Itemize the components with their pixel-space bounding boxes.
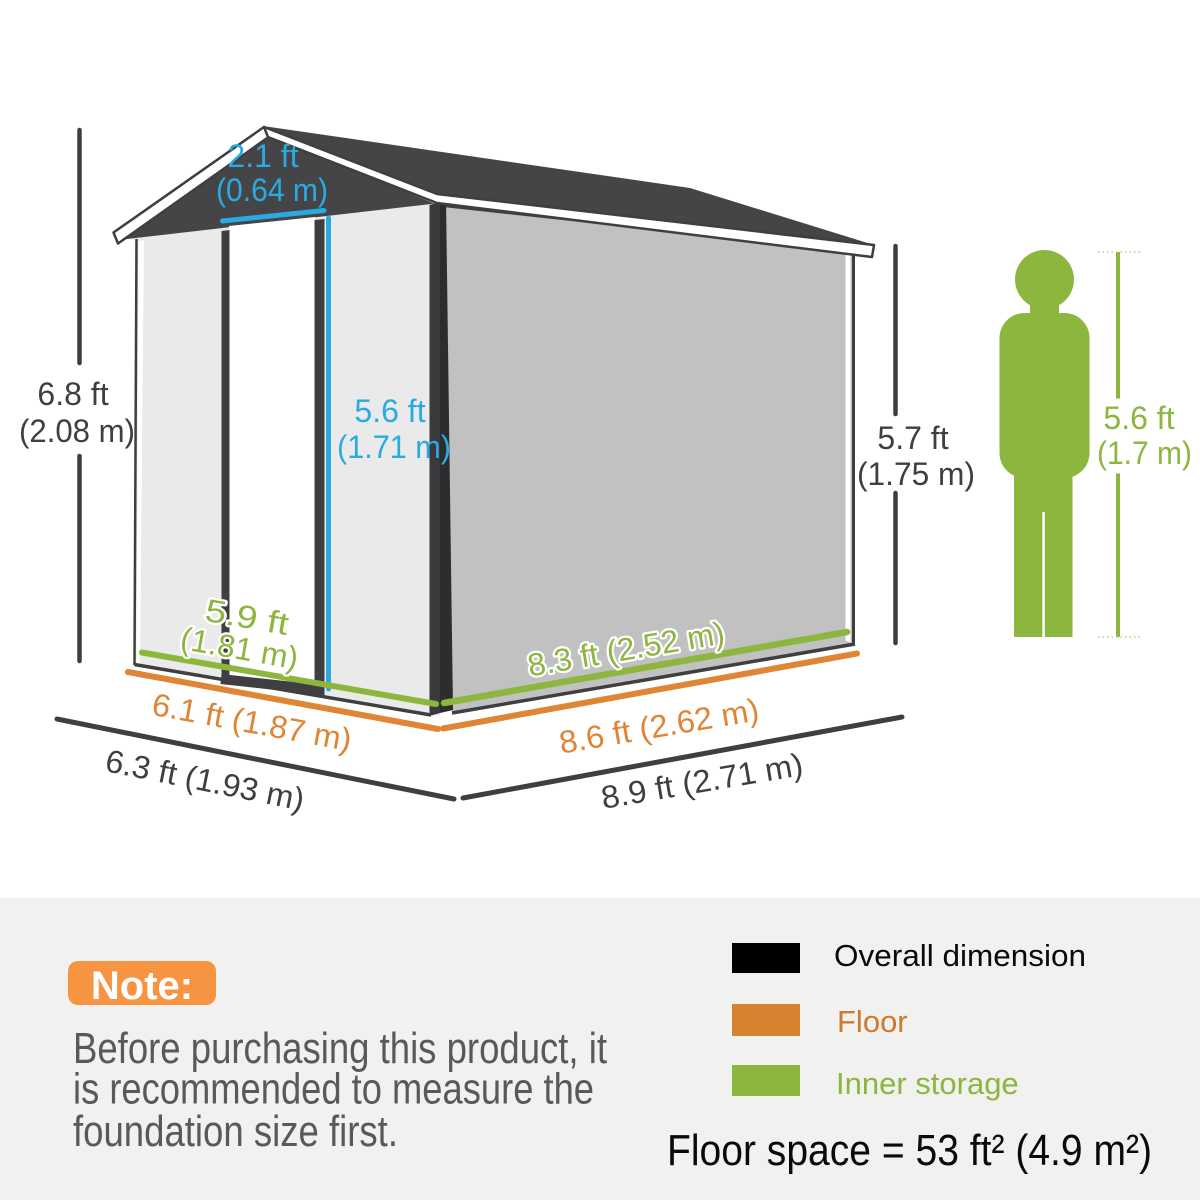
svg-text:Floor: Floor [837, 1004, 908, 1039]
svg-text:(1.71 m): (1.71 m) [337, 429, 451, 465]
svg-text:Floor space = 53 ft² (4.9 m²): Floor space = 53 ft² (4.9 m²) [667, 1126, 1152, 1175]
svg-text:(2.08 m): (2.08 m) [19, 413, 135, 449]
svg-text:Overall dimension: Overall dimension [834, 938, 1086, 973]
svg-text:(0.64 m): (0.64 m) [216, 172, 328, 208]
svg-text:Note:: Note: [91, 964, 193, 1008]
svg-text:5.7 ft: 5.7 ft [877, 420, 948, 456]
svg-text:(1.75 m): (1.75 m) [857, 456, 975, 492]
svg-text:Inner storage: Inner storage [836, 1066, 1019, 1101]
svg-text:(1.7 m): (1.7 m) [1097, 435, 1192, 471]
svg-text:foundation size first.: foundation size first. [73, 1107, 398, 1156]
svg-text:6.8 ft: 6.8 ft [37, 376, 108, 412]
svg-text:5.6 ft: 5.6 ft [1103, 400, 1174, 436]
svg-text:5.6 ft: 5.6 ft [354, 393, 425, 429]
svg-text:2.1 ft: 2.1 ft [227, 138, 298, 174]
